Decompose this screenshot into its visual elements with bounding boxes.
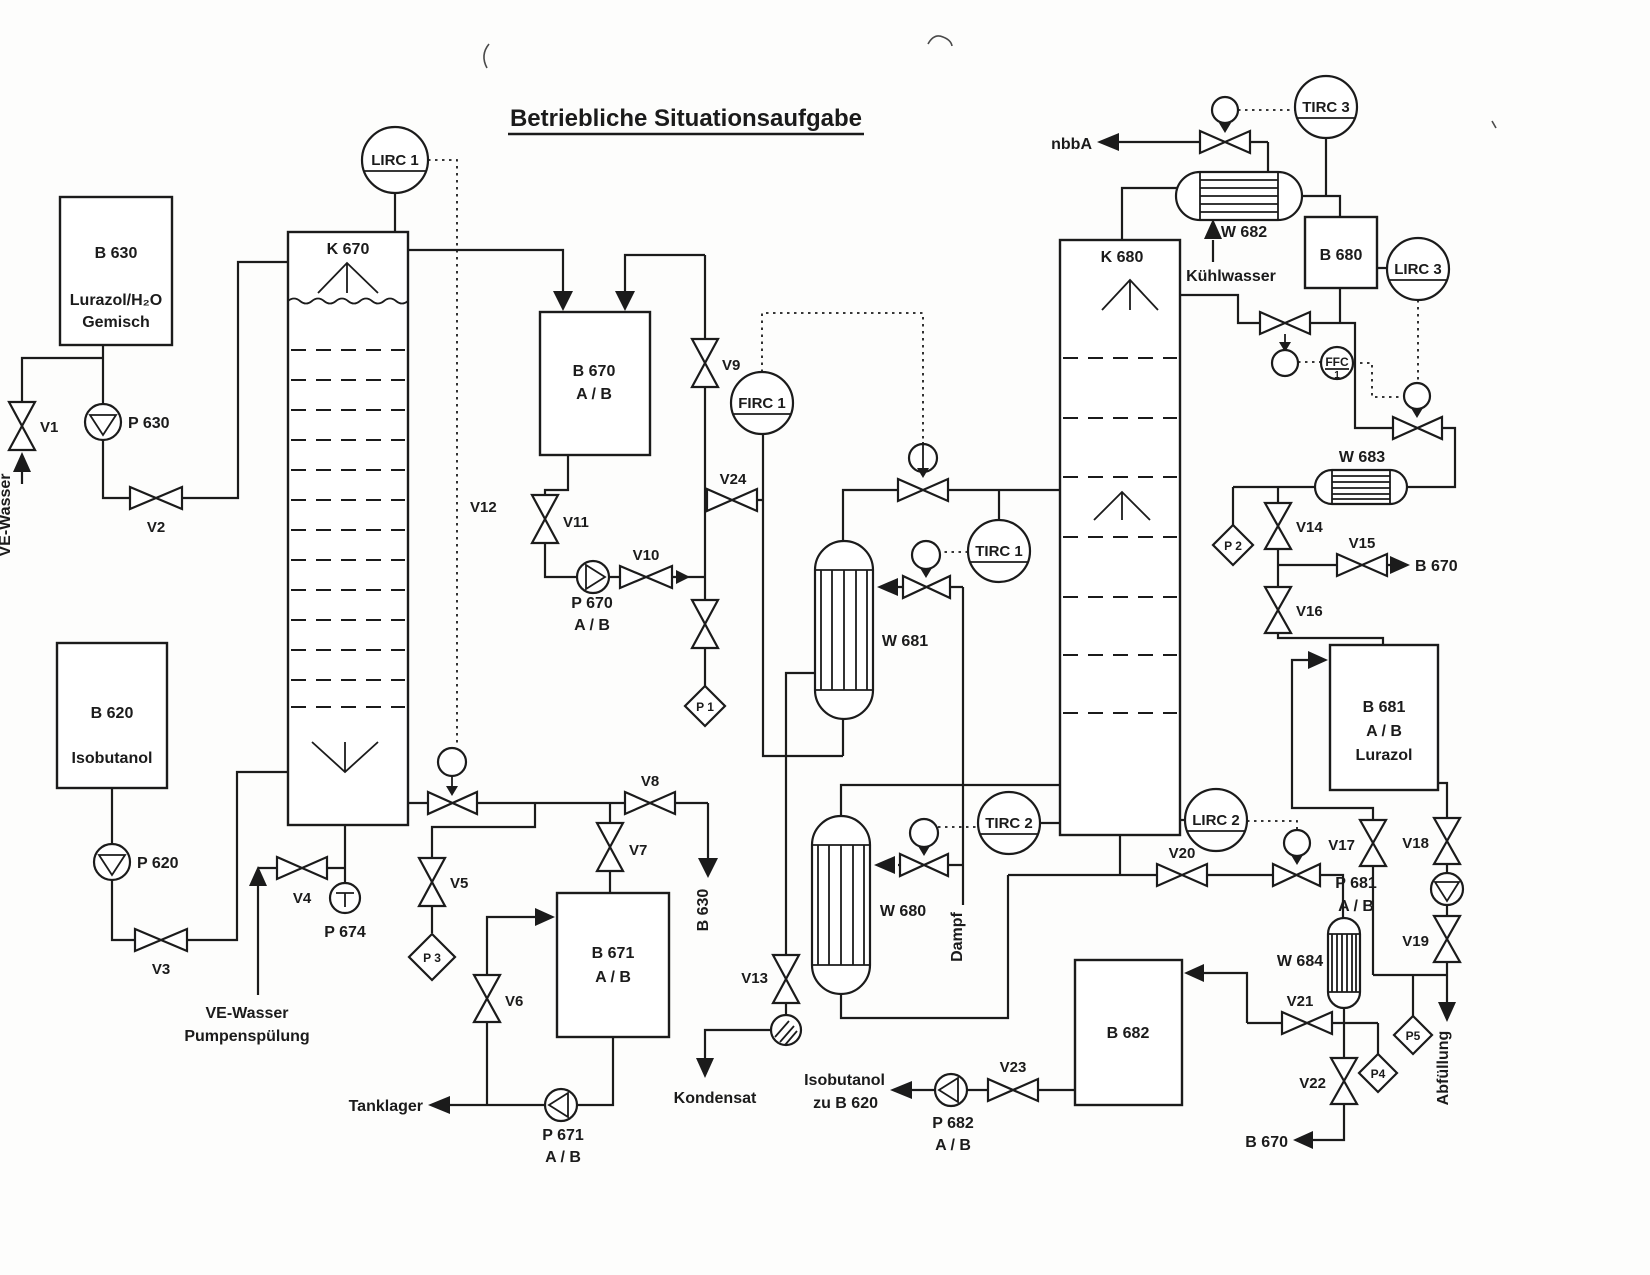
label-p1: P 1 <box>696 700 714 714</box>
valve-v4: V4 <box>277 857 327 907</box>
kondensat-arrow-icon <box>696 1058 714 1078</box>
label-spuelung-1: VE-Wasser <box>206 1005 289 1022</box>
label-v21: V21 <box>1287 993 1314 1010</box>
valve-v22: V22 <box>1299 1058 1357 1104</box>
column-k670: K 670 <box>288 232 408 825</box>
steam-trap <box>771 1015 801 1045</box>
b670-top-arrow-icon <box>1390 556 1410 574</box>
label-abfuellung: Abfüllung <box>1435 1031 1452 1106</box>
label-b630-content2: Gemisch <box>82 314 150 331</box>
control-valve-tirc2-steam <box>874 819 948 876</box>
instrument-tirc1: TIRC 1 <box>968 520 1030 582</box>
valve-v17: V17 <box>1328 820 1386 866</box>
stream-labels: VE-Wasser VE-Wasser Pumpenspülung B 630 … <box>0 136 1458 1151</box>
label-v3: V3 <box>152 961 170 978</box>
label-kuehlwasser: Kühlwasser <box>1186 268 1276 285</box>
valve-v1: V1 <box>9 402 58 450</box>
label-b670: B 670 <box>573 363 616 380</box>
pump-p620: P 620 <box>94 844 179 880</box>
label-tanklager: Tanklager <box>349 1098 423 1115</box>
exchanger-w682: W 682 <box>1176 172 1302 241</box>
diagram-title: Betriebliche Situationsaufgabe <box>508 105 864 134</box>
label-p670: P 670 <box>571 595 613 612</box>
label-b671: B 671 <box>592 945 635 962</box>
label-lirc3: LIRC 3 <box>1394 261 1442 278</box>
label-v11: V11 <box>563 514 589 531</box>
page-title: Betriebliche Situationsaufgabe <box>510 105 862 132</box>
label-b681-content: Lurazol <box>1356 747 1413 764</box>
label-lirc2: LIRC 2 <box>1192 812 1240 829</box>
control-valve-lirc3 <box>1393 383 1442 439</box>
label-v19: V19 <box>1402 933 1429 950</box>
label-tirc3: TIRC 3 <box>1302 99 1350 116</box>
label-w682: W 682 <box>1221 224 1267 241</box>
exchanger-w683: W 683 <box>1315 449 1407 504</box>
label-p5: P5 <box>1406 1029 1421 1043</box>
sample-point-p2: P 2 <box>1213 525 1253 565</box>
label-dampf: Dampf <box>949 911 966 961</box>
label-p630: P 630 <box>128 415 170 432</box>
label-p4: P4 <box>1371 1067 1386 1081</box>
control-valve-reflux-ffc <box>1260 312 1310 376</box>
valve-v7: V7 <box>597 823 647 871</box>
pump-p670: P 670 A / B <box>571 561 613 634</box>
control-valve-v12: V12 <box>428 499 497 814</box>
label-nbba: nbbA <box>1051 136 1092 153</box>
valve-v10: V10 <box>620 547 672 588</box>
label-ve-wasser: VE-Wasser <box>0 474 14 557</box>
valve-v3: V3 <box>135 929 187 978</box>
valve-v18: V18 <box>1402 818 1460 864</box>
label-tirc1: TIRC 1 <box>975 543 1023 560</box>
label-v5: V5 <box>450 875 468 892</box>
b670-inlet1-arrow-icon <box>553 291 573 311</box>
label-p671: P 671 <box>542 1127 584 1144</box>
valve-v6: V6 <box>474 975 523 1022</box>
valve-v15: V15 <box>1337 535 1387 576</box>
valve-v2: V2 <box>130 487 182 536</box>
b670-bottom-arrow-icon <box>1293 1131 1313 1149</box>
label-v7: V7 <box>629 842 647 859</box>
pump-p682: P 682 A / B <box>932 1074 974 1154</box>
valve-v11: V11 <box>532 495 589 543</box>
label-b620: B 620 <box>91 705 134 722</box>
label-v22: V22 <box>1299 1075 1326 1092</box>
label-v18: V18 <box>1402 835 1429 852</box>
label-w680: W 680 <box>880 903 926 920</box>
label-k670: K 670 <box>327 241 370 258</box>
control-valve-tirc1-steam <box>877 541 950 598</box>
valve-v8: V8 <box>625 773 675 814</box>
label-b681: B 681 <box>1363 699 1406 716</box>
exchanger-w680: W 680 <box>812 816 926 994</box>
label-v16: V16 <box>1296 603 1323 620</box>
valve-v21: V21 <box>1282 993 1332 1034</box>
label-b681-ab: A / B <box>1366 723 1402 740</box>
sample-point-p4: P4 <box>1359 1054 1397 1092</box>
sample-point-p5: P5 <box>1394 1016 1432 1054</box>
label-v17: V17 <box>1328 837 1355 854</box>
label-tirc2: TIRC 2 <box>985 815 1033 832</box>
instrument-tirc2: TIRC 2 <box>978 792 1040 854</box>
label-v2: V2 <box>147 519 165 536</box>
label-v14: V14 <box>1296 519 1323 536</box>
label-p681: P 681 <box>1335 875 1377 892</box>
ve-wasser-arrow-icon <box>13 452 31 472</box>
label-isobutanol-1: Isobutanol <box>804 1072 885 1089</box>
valve-v5: V5 <box>419 858 468 906</box>
sample-point-p1: P 1 <box>685 686 725 726</box>
label-p2: P 2 <box>1224 539 1242 553</box>
v10-flow-arrow-icon <box>676 570 690 584</box>
instrument-tirc3: TIRC 3 <box>1295 76 1357 138</box>
b682-inlet-arrow-icon <box>1184 964 1204 982</box>
label-p671-ab: A / B <box>545 1149 581 1166</box>
isobutanol-arrow-icon <box>890 1081 912 1099</box>
label-to-b670-bottom: B 670 <box>1245 1134 1288 1151</box>
label-b671-ab: A / B <box>595 969 631 986</box>
label-w681: W 681 <box>882 633 928 650</box>
label-v13: V13 <box>741 970 768 987</box>
label-firc1: FIRC 1 <box>738 395 786 412</box>
label-v20: V20 <box>1169 845 1196 862</box>
instrument-ffc1: FFC 1 <box>1321 347 1353 381</box>
abfuellung-arrow-icon <box>1438 1002 1456 1022</box>
label-v12: V12 <box>470 499 497 516</box>
vessel-b620: B 620 Isobutanol <box>57 643 167 788</box>
valve-v14: V14 <box>1265 503 1323 549</box>
label-v9: V9 <box>722 357 740 374</box>
label-b682: B 682 <box>1107 1025 1150 1042</box>
instrument-firc1: FIRC 1 <box>731 372 793 434</box>
tanklager-arrow-icon <box>428 1096 450 1114</box>
label-p682: P 682 <box>932 1115 974 1132</box>
b630-return-arrow-icon <box>698 858 718 878</box>
process-pipes <box>22 138 1455 1140</box>
label-p620: P 620 <box>137 855 179 872</box>
label-isobutanol-2: zu B 620 <box>813 1095 878 1112</box>
label-b680: B 680 <box>1320 247 1363 264</box>
sample-point-p3: P 3 <box>409 934 455 980</box>
b681-inlet-arrow-icon <box>1308 651 1328 669</box>
control-valve-nbba <box>1200 97 1250 153</box>
label-v10: V10 <box>633 547 660 564</box>
b670-inlet2-arrow-icon <box>615 291 635 311</box>
control-valve-lirc2-w684 <box>1273 830 1320 886</box>
label-ffc: FFC <box>1325 355 1349 369</box>
valve-v23: V23 <box>988 1059 1038 1101</box>
label-ffc-1: 1 <box>1334 370 1340 381</box>
label-p3: P 3 <box>423 951 441 965</box>
kuehlwasser-arrow-icon <box>1204 219 1222 239</box>
valve-drain-p1 <box>692 600 718 648</box>
label-to-b670-top: B 670 <box>1415 558 1458 575</box>
vessel-b682: B 682 <box>1075 960 1182 1105</box>
label-kondensat: Kondensat <box>674 1090 757 1107</box>
instrument-p674: P 674 <box>324 883 366 941</box>
label-to-b630: B 630 <box>695 889 712 932</box>
vessel-b670: B 670 A / B <box>540 312 650 455</box>
label-p670-ab: A / B <box>574 617 610 634</box>
valve-v20: V20 <box>1157 845 1207 886</box>
label-b630: B 630 <box>95 245 138 262</box>
valve-v9: V9 <box>692 339 740 387</box>
vessel-b671: B 671 A / B <box>557 893 669 1037</box>
label-w683: W 683 <box>1339 449 1385 466</box>
label-p674: P 674 <box>324 924 366 941</box>
label-b670-ab: A / B <box>576 386 612 403</box>
label-v24: V24 <box>720 471 747 488</box>
label-w684: W 684 <box>1277 953 1323 970</box>
control-valve-firc <box>898 442 948 501</box>
label-b620-content: Isobutanol <box>72 750 153 767</box>
exchanger-w681: W 681 <box>815 541 928 719</box>
label-v15: V15 <box>1349 535 1376 552</box>
label-p681-ab: A / B <box>1338 898 1374 915</box>
pump-p681: P 681 A / B <box>1335 873 1463 915</box>
valve-v24: V24 <box>707 471 757 511</box>
nbba-arrow-icon <box>1097 133 1119 151</box>
vessel-b681: B 681 A / B Lurazol <box>1330 645 1438 790</box>
instrument-lirc3: LIRC 3 <box>1387 238 1449 300</box>
vessel-b680: B 680 <box>1305 217 1377 288</box>
label-v6: V6 <box>505 993 523 1010</box>
valve-v13: V13 <box>741 955 799 1003</box>
b671-inlet-arrow-icon <box>535 908 555 926</box>
flow-arrows <box>13 133 1456 1149</box>
label-p682-ab: A / B <box>935 1137 971 1154</box>
valve-v19: V19 <box>1402 916 1460 962</box>
instrument-lirc2: LIRC 2 <box>1185 789 1247 851</box>
pump-p671: P 671 A / B <box>542 1089 584 1166</box>
label-spuelung-2: Pumpenspülung <box>184 1028 309 1045</box>
column-k680: K 680 <box>1060 240 1180 835</box>
vessel-b630: B 630 Lurazol/H₂O Gemisch <box>60 197 172 345</box>
scanned-pid-page: Betriebliche Situationsaufgabe <box>0 0 1650 1275</box>
label-v8: V8 <box>641 773 659 790</box>
label-k680: K 680 <box>1101 249 1144 266</box>
valve-v16: V16 <box>1265 587 1323 633</box>
pump-p630: P 630 <box>85 404 170 440</box>
instrument-lirc1: LIRC 1 <box>362 127 428 193</box>
label-v23: V23 <box>1000 1059 1027 1076</box>
label-b630-content1: Lurazol/H₂O <box>70 292 162 309</box>
label-v4: V4 <box>293 890 312 907</box>
label-lirc1: LIRC 1 <box>371 152 419 169</box>
label-v1: V1 <box>40 419 58 436</box>
